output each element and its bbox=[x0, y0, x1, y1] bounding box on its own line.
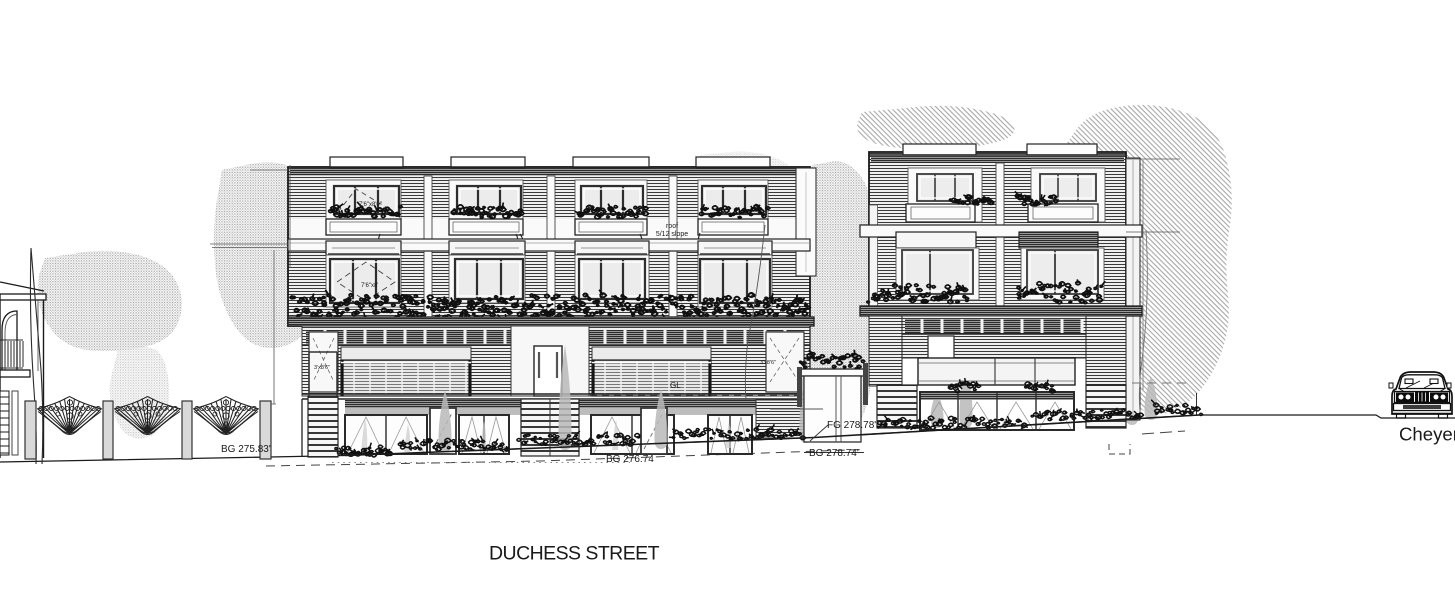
svg-text:3'x8'6": 3'x8'6" bbox=[314, 365, 330, 371]
svg-text:GL: GL bbox=[670, 381, 681, 390]
svg-text:5/12 slope: 5/12 slope bbox=[656, 231, 688, 238]
svg-text:BG 276.74: BG 276.74 bbox=[606, 454, 654, 465]
svg-text:7'6"x8'0": 7'6"x8'0" bbox=[359, 202, 382, 208]
svg-text:Cheyenne: Cheyenne bbox=[1399, 424, 1455, 445]
svg-text:BG 278.74': BG 278.74' bbox=[809, 448, 859, 459]
svg-text:7'6"x8': 7'6"x8' bbox=[361, 283, 378, 289]
svg-text:3'x8'6": 3'x8'6" bbox=[760, 360, 776, 366]
svg-text:BG 275.83': BG 275.83' bbox=[221, 444, 271, 455]
svg-text:roof: roof bbox=[666, 223, 678, 230]
svg-text:DUCHESS STREET: DUCHESS STREET bbox=[489, 543, 660, 565]
svg-text:FG 278.78': FG 278.78' bbox=[827, 420, 876, 431]
